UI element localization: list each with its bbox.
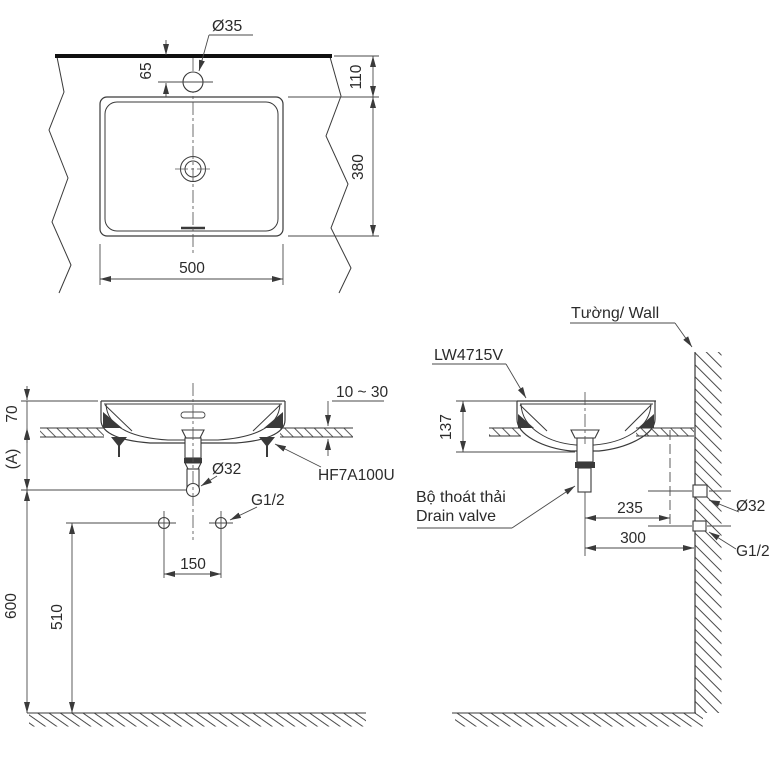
sink-corner-fill-right (264, 412, 283, 428)
clamp-leader (275, 444, 321, 467)
dim500-text: 500 (179, 260, 205, 277)
supply-thread-label-front: G1/2 (251, 492, 285, 509)
basin-outer-rect (100, 97, 283, 236)
floor-hatch-side (455, 714, 703, 727)
side-view: 137 235 300 Ø32 G1/2 Tường/ Wall LW4715V… (416, 305, 770, 727)
floor-hatch-front (29, 714, 366, 727)
counter-hatch-side-left (489, 429, 521, 437)
outlet-dia-label: Ø32 (736, 498, 765, 515)
technical-drawing: Ø35 65 110 380 500 (0, 0, 774, 763)
counter-break-right (326, 57, 351, 293)
dim110-text: 110 (348, 64, 365, 89)
model-leader (506, 364, 526, 398)
sink-corner-fill-left (103, 412, 122, 428)
supply-thread-label-side: G1/2 (736, 543, 770, 560)
counter-hatch-left (40, 429, 104, 438)
dim510-text: 510 (49, 604, 66, 630)
dim600-text: 600 (3, 593, 20, 619)
drain-valve-label-vi: Bộ thoát thải (416, 489, 506, 506)
drain-dia-label-front: Ø32 (212, 461, 241, 478)
dim70-text: 70 (4, 405, 21, 423)
drain-valve-leader (512, 486, 575, 528)
faucet-leader (199, 35, 209, 71)
drain-pipe-side (578, 468, 591, 492)
wall-label-leader (675, 323, 692, 347)
outletG-box (693, 521, 706, 531)
dim380-text: 380 (350, 154, 367, 180)
dim300-text: 300 (620, 530, 646, 547)
top-view: Ø35 65 110 380 500 (49, 18, 379, 293)
drain-ring-side (575, 462, 595, 468)
dim65-text: 65 (138, 62, 155, 79)
faucet-hole-label: Ø35 (212, 18, 242, 35)
supply-thread-leader-front (230, 507, 257, 520)
wall-label: Tường/ Wall (571, 305, 659, 322)
dimA-text: (A) (4, 449, 21, 470)
drain-dia-leader-front (201, 476, 217, 486)
wall-hatch (696, 352, 722, 713)
drain-valve-label-en: Drain valve (416, 508, 496, 525)
counter-hatch-right (280, 429, 353, 438)
outlet32-box (693, 485, 707, 497)
dim150-text: 150 (180, 556, 206, 573)
front-view: 70 (A) 600 510 150 10 ~ 30 HF7A100U Ø32 … (3, 383, 395, 727)
drawing-svg: Ø35 65 110 380 500 (0, 0, 774, 763)
counter-break-left (49, 57, 71, 293)
counter-thickness-text: 10 ~ 30 (336, 384, 389, 401)
basin-inner-rect (105, 102, 278, 231)
dim235-text: 235 (617, 500, 643, 517)
clamp-label: HF7A100U (318, 467, 395, 484)
model-label: LW4715V (434, 347, 503, 364)
dim137-text: 137 (438, 414, 455, 440)
